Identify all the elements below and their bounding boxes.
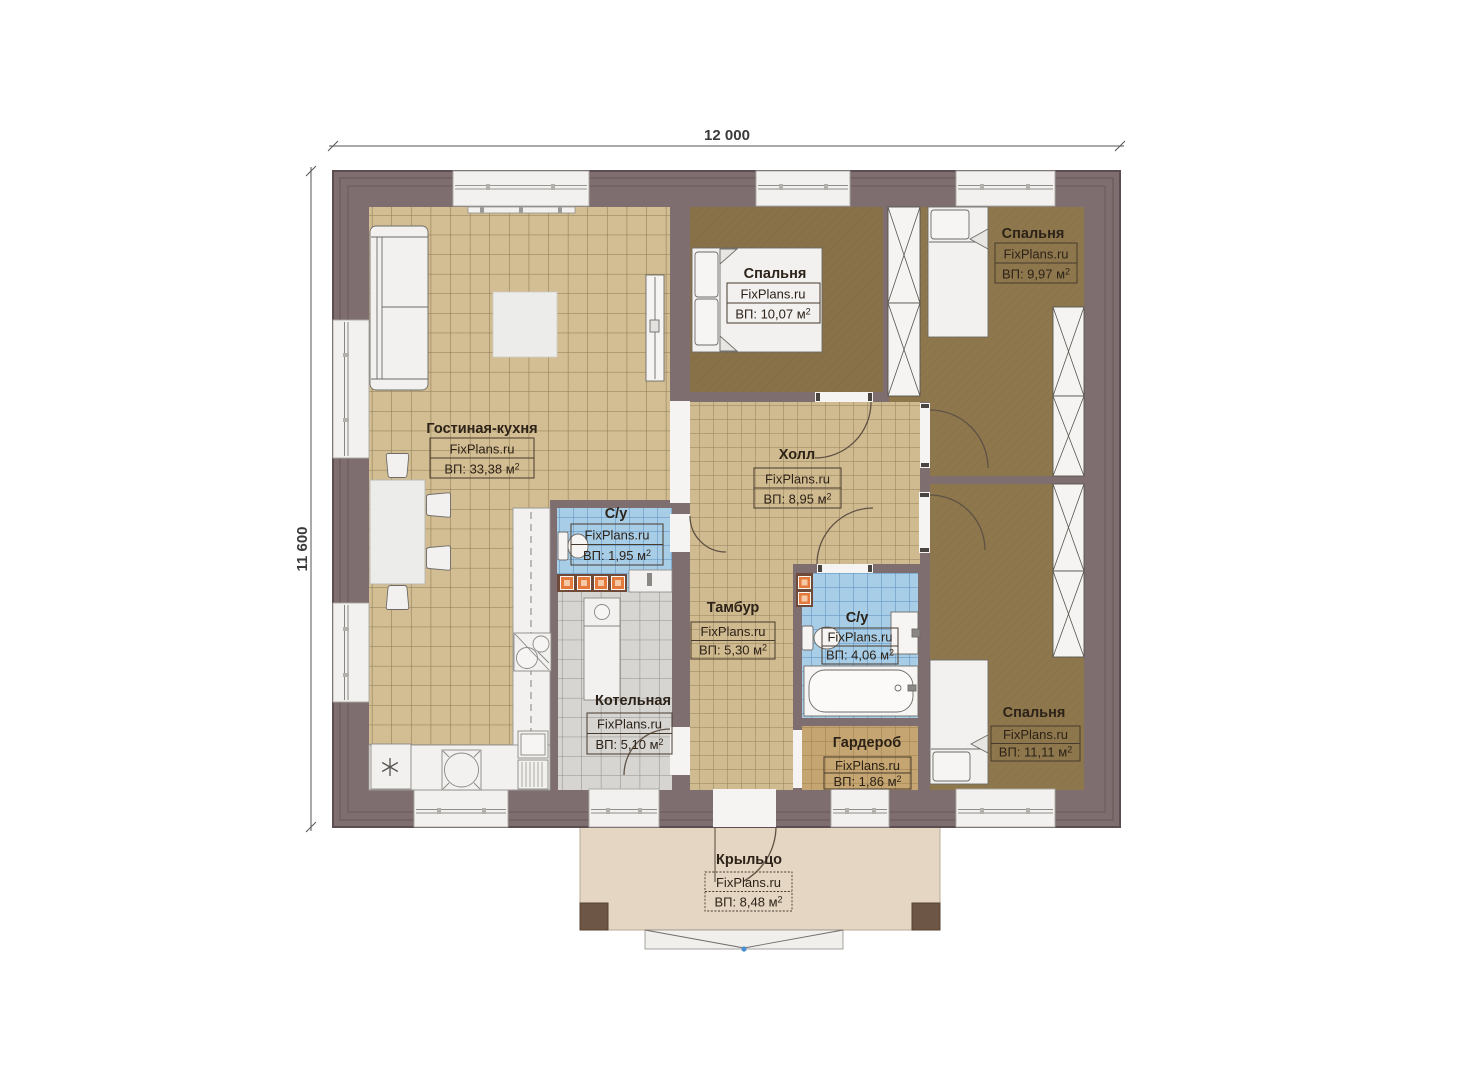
svg-text:FixPlans.ru: FixPlans.ru — [449, 442, 514, 457]
svg-text:FixPlans.ru: FixPlans.ru — [740, 287, 805, 302]
svg-text:ВП: 4,06 м2: ВП: 4,06 м2 — [826, 648, 894, 663]
svg-text:FixPlans.ru: FixPlans.ru — [827, 630, 892, 645]
svg-text:С/у: С/у — [846, 610, 869, 626]
svg-text:FixPlans.ru: FixPlans.ru — [716, 875, 781, 890]
svg-text:ВП: 5,10 м2: ВП: 5,10 м2 — [595, 737, 663, 752]
svg-text:ВП: 1,86 м2: ВП: 1,86 м2 — [833, 774, 901, 789]
svg-text:FixPlans.ru: FixPlans.ru — [765, 472, 830, 487]
svg-text:ВП: 9,97 м2: ВП: 9,97 м2 — [1002, 267, 1070, 282]
svg-text:FixPlans.ru: FixPlans.ru — [1003, 247, 1068, 262]
svg-text:Спальня: Спальня — [744, 266, 807, 282]
svg-text:Спальня: Спальня — [1002, 226, 1065, 242]
svg-text:Котельная: Котельная — [595, 693, 671, 709]
svg-text:FixPlans.ru: FixPlans.ru — [835, 758, 900, 773]
svg-text:FixPlans.ru: FixPlans.ru — [597, 717, 662, 732]
svg-text:Тамбур: Тамбур — [707, 600, 760, 616]
svg-text:Гардероб: Гардероб — [833, 735, 902, 751]
svg-text:FixPlans.ru: FixPlans.ru — [1003, 727, 1068, 742]
svg-text:ВП: 33,38 м2: ВП: 33,38 м2 — [444, 462, 519, 477]
svg-text:Крыльцо: Крыльцо — [716, 852, 782, 868]
svg-text:ВП: 10,07 м2: ВП: 10,07 м2 — [735, 307, 810, 322]
svg-text:Гостиная-кухня: Гостиная-кухня — [426, 421, 537, 437]
svg-text:ВП: 5,30 м2: ВП: 5,30 м2 — [699, 643, 767, 658]
svg-text:ВП: 8,95 м2: ВП: 8,95 м2 — [763, 492, 831, 507]
svg-text:ВП: 8,48 м2: ВП: 8,48 м2 — [714, 895, 782, 910]
svg-text:12 000: 12 000 — [704, 127, 750, 144]
svg-text:С/у: С/у — [605, 506, 628, 522]
svg-text:ВП: 11,11 м2: ВП: 11,11 м2 — [999, 745, 1072, 760]
svg-text:ВП: 1,95 м2: ВП: 1,95 м2 — [583, 548, 651, 563]
svg-text:FixPlans.ru: FixPlans.ru — [584, 528, 649, 543]
svg-text:Спальня: Спальня — [1003, 705, 1066, 721]
svg-text:11 600: 11 600 — [294, 526, 311, 571]
svg-text:FixPlans.ru: FixPlans.ru — [700, 624, 765, 639]
svg-text:Холл: Холл — [779, 447, 815, 463]
